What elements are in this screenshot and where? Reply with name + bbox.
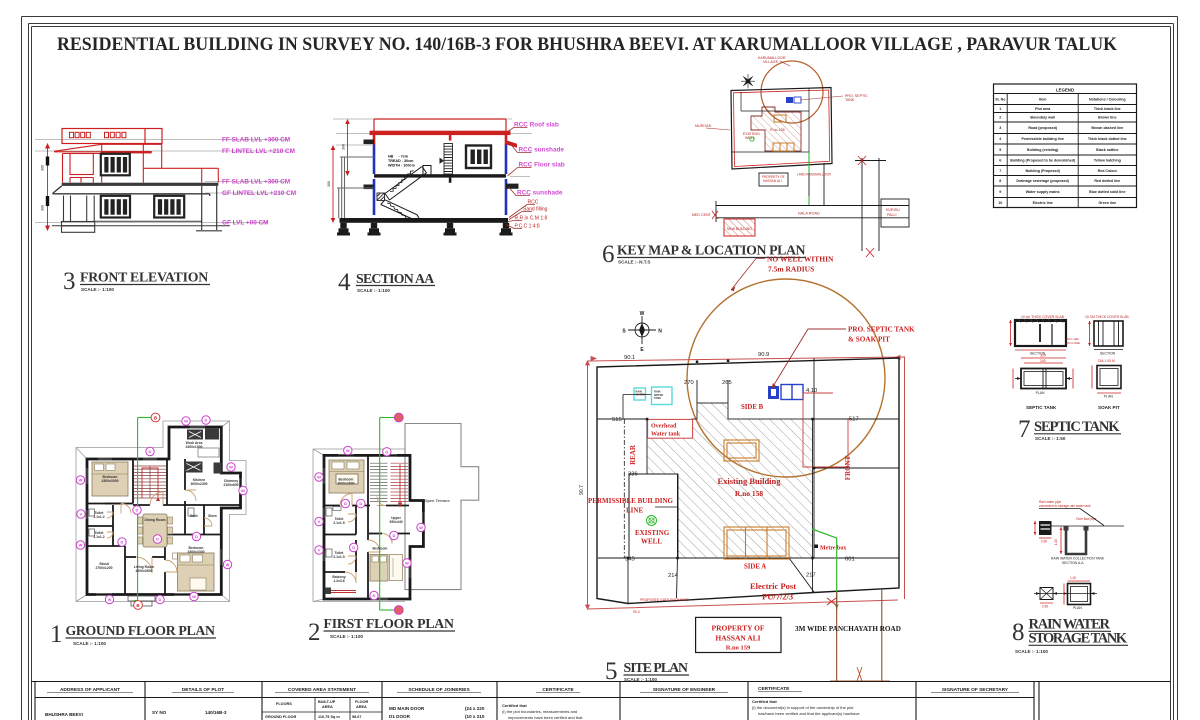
svg-text:Brown line: Brown line [1098, 116, 1116, 120]
svg-text:SECTION A-A: SECTION A-A [1062, 561, 1084, 565]
svg-text:336: 336 [628, 472, 638, 478]
svg-text:RCC: RCC [528, 200, 539, 206]
svg-text:RCC sunshade: RCC sunshade [519, 147, 565, 154]
svg-text:KURISU: KURISU [886, 208, 900, 212]
svg-text:W: W [192, 594, 196, 599]
svg-text:R.no 159: R.no 159 [726, 645, 751, 652]
svg-text:6: 6 [602, 241, 615, 268]
svg-text:Building (existing): Building (existing) [1027, 148, 1059, 152]
svg-text:SCALE :- 1:50: SCALE :- 1:50 [1035, 436, 1066, 441]
svg-text:WELL: WELL [745, 136, 755, 140]
svg-text:W: W [640, 311, 645, 317]
svg-text:7.5m RADIUS: 7.5m RADIUS [768, 265, 814, 274]
svg-text:SEPTIC TANK: SEPTIC TANK [1034, 419, 1120, 435]
svg-text:WELL: WELL [641, 538, 662, 546]
svg-text:3000x3600: 3000x3600 [338, 482, 355, 486]
svg-text:PALLI: PALLI [887, 213, 897, 217]
svg-text:RCC sunshade: RCC sunshade [517, 190, 563, 197]
svg-text:W: W [419, 525, 423, 530]
svg-text:FLOORS: FLOORS [276, 702, 292, 706]
svg-text:& SOAK PIT: & SOAK PIT [848, 336, 890, 344]
svg-text:1: 1 [50, 621, 63, 648]
svg-text:Sand filling: Sand filling [523, 207, 548, 213]
svg-text:Thick black dotted line: Thick black dotted line [1088, 137, 1127, 141]
svg-text:3300x3300: 3300x3300 [188, 550, 205, 554]
svg-text:7: 7 [999, 169, 1001, 173]
svg-text:connected to storage rain wate: connected to storage rain water tank [1039, 504, 1091, 508]
svg-text:1.2x3.6: 1.2x3.6 [333, 579, 344, 583]
svg-text:SIDE B: SIDE B [741, 404, 764, 411]
svg-text:R.no 158: R.no 158 [770, 128, 785, 132]
svg-text:D: D [121, 540, 124, 545]
svg-text:Electric Post: Electric Post [750, 581, 796, 591]
svg-text:Existing Building: Existing Building [717, 476, 781, 486]
svg-text:RESIDENTIAL BUILDING IN SUR: RESIDENTIAL BUILDING IN SURVEY NO. 140/1… [57, 35, 1118, 55]
svg-text:FF SLAB LVL +300 CM: FF SLAB LVL +300 CM [222, 137, 290, 144]
svg-text:FRONT ELEVATION: FRONT ELEVATION [80, 270, 209, 285]
svg-text:D: D [392, 533, 395, 538]
svg-text:improvements have been verifie: improvements have been verified and that [508, 715, 583, 720]
svg-text:HASSAN ALI: HASSAN ALI [763, 179, 782, 183]
svg-text:Blue dotted solid line: Blue dotted solid line [1089, 190, 1125, 194]
svg-text:Building (Proposed): Building (Proposed) [1026, 169, 1061, 173]
svg-text:PERMISSIBLE BUILDING: PERMISSIBLE BUILDING [588, 497, 674, 505]
svg-text:Yellow hatching: Yellow hatching [1094, 159, 1121, 163]
svg-text:PLAN: PLAN [1073, 606, 1082, 610]
svg-text:NEW BUILDING: NEW BUILDING [727, 227, 752, 231]
svg-text:SCALE :- 1:100: SCALE :- 1:100 [81, 287, 114, 292]
svg-text:Bedroom: Bedroom [373, 547, 388, 551]
svg-text:W: W [405, 561, 409, 566]
svg-text:D: D [344, 501, 347, 506]
svg-text:SITE PLAN: SITE PLAN [624, 660, 689, 675]
svg-text:SCALE :- 1:100: SCALE :- 1:100 [1015, 649, 1048, 654]
svg-text:REAR: REAR [629, 444, 637, 465]
svg-text:90.4: 90.4 [633, 610, 640, 614]
svg-text:Boundary wall: Boundary wall [1030, 116, 1055, 120]
svg-text:Store: Store [208, 514, 217, 518]
svg-text:PRO. SEPTIC TANK: PRO. SEPTIC TANK [848, 326, 915, 334]
svg-text:Water supply mains: Water supply mains [1026, 190, 1060, 194]
svg-text:FF LINTEL LVL +210 CM: FF LINTEL LVL +210 CM [222, 148, 295, 155]
svg-text:214: 214 [668, 573, 678, 579]
svg-text:2.1x1.5: 2.1x1.5 [333, 555, 344, 559]
svg-text:2100x600: 2100x600 [223, 483, 238, 487]
svg-text:D: D [352, 545, 355, 550]
svg-text:W: W [229, 465, 233, 470]
svg-text:Brown dashed line: Brown dashed line [1091, 126, 1123, 130]
svg-text:W: W [79, 478, 83, 483]
svg-text:Green line: Green line [1099, 201, 1117, 205]
svg-text:TANK: TANK [845, 98, 855, 102]
svg-text:300: 300 [342, 144, 346, 150]
svg-text:LINE: LINE [626, 507, 643, 515]
svg-text:RCC Roof slab: RCC Roof slab [514, 122, 559, 129]
svg-text:(24 x 220: (24 x 220 [465, 706, 485, 711]
svg-text:MED CENT: MED CENT [692, 213, 712, 217]
svg-text:Drainage sewerage (proposed): Drainage sewerage (proposed) [1016, 179, 1069, 183]
svg-text:300: 300 [327, 181, 331, 187]
svg-text:EXISTING: EXISTING [635, 529, 670, 537]
svg-text:Overhead: Overhead [651, 424, 677, 430]
svg-text:TANK: TANK [654, 396, 661, 400]
svg-text:SCALE :- 1:100: SCALE :- 1:100 [330, 634, 363, 639]
svg-text:0.50: 0.50 [1042, 605, 1048, 609]
svg-text:3M WIDE PANCHAYATH ROAD: 3M WIDE PANCHAYATH ROAD [795, 625, 901, 633]
svg-text:Red Colour: Red Colour [1098, 169, 1118, 173]
svg-text:RAIN WATER COLLECTION TANK: RAIN WATER COLLECTION TANK [1051, 557, 1105, 561]
svg-text:FIRST FLOOR PLAN: FIRST FLOOR PLAN [324, 616, 455, 631]
svg-text:N: N [658, 329, 662, 335]
svg-text:Item: Item [1039, 98, 1046, 102]
svg-text:545: 545 [625, 557, 635, 563]
svg-text:W: W [317, 475, 321, 480]
svg-text:Building (Proposed to be demol: Building (Proposed to be demolished) [1010, 159, 1076, 163]
svg-text:D: D [195, 534, 198, 539]
svg-text:R.R in C.M 1:8: R.R in C.M 1:8 [515, 216, 548, 222]
svg-text:GF LINTEL LVL +210 CM: GF LINTEL LVL +210 CM [222, 190, 296, 197]
svg-text:2: 2 [308, 619, 321, 646]
svg-text:SEPTIC TANK: SEPTIC TANK [1026, 405, 1057, 410]
svg-text:3: 3 [63, 268, 76, 295]
svg-text:110.75 Sq m: 110.75 Sq m [318, 715, 340, 719]
svg-text:D: D [156, 537, 159, 542]
svg-text:SECTION AA: SECTION AA [356, 271, 435, 286]
svg-text:V: V [318, 519, 321, 524]
svg-text:PROPOSED GATE ENTRANCE: PROPOSED GATE ENTRANCE [640, 598, 689, 602]
svg-text:P.C.C 1:4:8: P.C.C 1:4:8 [515, 224, 540, 230]
svg-text:V: V [80, 512, 83, 517]
svg-text:W: W [108, 597, 112, 602]
svg-text:0.50: 0.50 [1041, 540, 1047, 544]
svg-text:STORAGE TANK: STORAGE TANK [1029, 631, 1128, 647]
svg-text:DETAILS OF PLOT: DETAILS OF PLOT [182, 687, 224, 693]
svg-text:4: 4 [338, 269, 351, 296]
svg-text:SECTION: SECTION [1100, 352, 1116, 356]
svg-text:3: 3 [999, 126, 1001, 130]
svg-text:265: 265 [722, 380, 732, 386]
svg-text:MD MAIN DOOR: MD MAIN DOOR [389, 706, 425, 711]
svg-text:W: W [79, 543, 83, 548]
svg-text:Metre box: Metre box [820, 546, 846, 552]
svg-text:D: D [205, 418, 208, 423]
svg-text:WIDTH - 100cm: WIDTH - 100cm [388, 164, 416, 168]
svg-text:D: D [136, 508, 139, 513]
svg-text:601: 601 [845, 557, 855, 563]
svg-text:Open Terrace: Open Terrace [424, 498, 450, 503]
svg-text:Certified that: Certified that [752, 699, 777, 704]
svg-text:W: W [226, 562, 230, 567]
svg-text:GROUND FLOOR: GROUND FLOOR [265, 715, 296, 719]
svg-text:1: 1 [999, 107, 1001, 111]
svg-text:(10 x 210: (10 x 210 [465, 714, 485, 719]
svg-text:D: D [385, 450, 388, 455]
svg-text:SIDE A: SIDE A [744, 564, 766, 571]
svg-text:Black outline: Black outline [1096, 148, 1118, 152]
svg-text:140/16B-3: 140/16B-3 [205, 710, 227, 715]
svg-text:HB - 7cm: HB - 7cm [388, 155, 409, 159]
svg-text:90.9: 90.9 [758, 352, 769, 358]
svg-text:LEGEND: LEGEND [1056, 88, 1074, 93]
svg-text:3300x3000: 3300x3000 [102, 479, 119, 483]
svg-text:Plot area: Plot area [1035, 107, 1051, 111]
svg-text:10 cm THICK COVER SLAB: 10 cm THICK COVER SLAB [1021, 315, 1065, 319]
svg-text:W: W [346, 448, 350, 453]
svg-text:Bath: Bath [190, 514, 198, 518]
svg-text:PLAN: PLAN [1104, 395, 1113, 399]
svg-text:4: 4 [999, 137, 1001, 141]
svg-text:2.1x1.2: 2.1x1.2 [93, 515, 104, 519]
svg-text:(i) the document(s) in support: (i) the document(s) in support of the ow… [752, 705, 854, 710]
svg-text:Thick black line: Thick black line [1094, 107, 1121, 111]
svg-text:Sl. No: Sl. No [995, 98, 1006, 102]
svg-text:Road (proposed): Road (proposed) [1028, 126, 1058, 130]
svg-text:LAND KARUMALLOOR: LAND KARUMALLOOR [797, 173, 832, 177]
svg-text:FLOOR: FLOOR [355, 700, 369, 704]
svg-text:V: V [318, 548, 321, 553]
svg-text:2: 2 [999, 116, 1001, 120]
svg-text:4200x3600: 4200x3600 [136, 569, 153, 573]
svg-text:Certified that: Certified that [502, 703, 527, 708]
svg-text:Water tank: Water tank [651, 432, 681, 438]
svg-text:5: 5 [999, 148, 1001, 152]
svg-text:RCC Floor slab: RCC Floor slab [519, 162, 565, 169]
svg-text:COVERED AREA STATEMENT: COVERED AREA STATEMENT [288, 687, 356, 693]
svg-text:NO WELL WITHIN: NO WELL WITHIN [767, 255, 834, 264]
svg-text:SCHEDULE OF JOINERIES: SCHEDULE OF JOINERIES [408, 687, 470, 693]
svg-text:D: D [359, 501, 362, 506]
svg-text:90.1: 90.1 [624, 355, 635, 361]
svg-text:217: 217 [806, 573, 816, 579]
svg-text:517: 517 [849, 417, 859, 423]
svg-text:ADDRESS OF APPLICANT: ADDRESS OF APPLICANT [60, 687, 120, 693]
svg-text:CERTIFICATE: CERTIFICATE [758, 686, 790, 692]
svg-text:6: 6 [999, 159, 1001, 163]
svg-text:20cm Wall: 20cm Wall [1066, 341, 1080, 345]
svg-text:Dining Room: Dining Room [144, 518, 165, 522]
svg-text:98.67: 98.67 [352, 715, 362, 719]
svg-text:8: 8 [999, 179, 1001, 183]
svg-text:2700x1200: 2700x1200 [96, 566, 113, 570]
svg-text:GF LVL +00 CM: GF LVL +00 CM [222, 220, 268, 227]
svg-text:NALA ROAD: NALA ROAD [798, 212, 820, 216]
svg-text:CERTIFICATE: CERTIFICATE [542, 687, 574, 693]
svg-text:has/have been verified and tha: has/have been verified and that the appl… [758, 711, 860, 716]
svg-text:7: 7 [1018, 416, 1031, 443]
svg-text:BUILT-UP: BUILT-UP [318, 700, 336, 704]
svg-text:2400x1500: 2400x1500 [186, 445, 203, 449]
svg-text:240: 240 [1040, 359, 1046, 363]
svg-text:SCALE :- N.T.S: SCALE :- N.T.S [618, 260, 650, 265]
svg-text:SIGNATURE OF SECRETARY: SIGNATURE OF SECRETARY [942, 687, 1009, 693]
svg-text:300: 300 [41, 165, 45, 171]
svg-text:390x440: 390x440 [389, 520, 402, 524]
svg-text:Electric line: Electric line [1033, 201, 1053, 205]
svg-text:W: W [184, 419, 188, 424]
svg-text:HASSAN ALI: HASSAN ALI [715, 634, 760, 643]
svg-text:SOAK PIT: SOAK PIT [1098, 405, 1120, 410]
svg-text:9: 9 [999, 190, 1001, 194]
svg-text:2.1x1.5: 2.1x1.5 [333, 521, 344, 525]
svg-text:AREA: AREA [356, 705, 367, 709]
svg-text:10 CM THICK COVER SLAB: 10 CM THICK COVER SLAB [1085, 315, 1129, 319]
svg-text:Permissible building line: Permissible building line [1022, 137, 1064, 141]
svg-text:PLAN: PLAN [1036, 391, 1045, 395]
svg-text:2.1x1.2: 2.1x1.2 [93, 535, 104, 539]
svg-text:D: D [159, 597, 162, 602]
svg-text:VILLAGE: VILLAGE [763, 60, 779, 64]
svg-text:3000x2400: 3000x2400 [191, 482, 208, 486]
svg-text:Red dotted line: Red dotted line [1094, 179, 1120, 183]
svg-text:D1 DOOR: D1 DOOR [389, 714, 411, 719]
svg-text:GROUND FLOOR PLAN: GROUND FLOOR PLAN [66, 623, 216, 638]
svg-text:515: 515 [612, 417, 622, 423]
svg-text:Notations / Colouring: Notations / Colouring [1089, 98, 1126, 102]
svg-text:PU/7/2/3: PU/7/2/3 [762, 592, 793, 602]
svg-text:10: 10 [998, 201, 1002, 205]
svg-text:4.10: 4.10 [806, 388, 817, 394]
svg-text:BHUSHRA BEEVI: BHUSHRA BEEVI [45, 712, 83, 717]
svg-text:SCALE :- 1:100: SCALE :- 1:100 [357, 288, 390, 293]
svg-text:SY NO: SY NO [152, 710, 167, 715]
svg-text:270: 270 [684, 380, 694, 386]
svg-text:1.00: 1.00 [1070, 576, 1076, 580]
svg-text:R.no 158: R.no 158 [735, 489, 764, 498]
svg-text:AREA: AREA [322, 705, 333, 709]
svg-text:W: W [241, 488, 245, 493]
svg-text:8: 8 [1012, 619, 1025, 646]
svg-text:SIGNATURE OF ENGINEER: SIGNATURE OF ENGINEER [653, 687, 716, 693]
svg-text:DIA 1.00 M: DIA 1.00 M [1098, 359, 1115, 363]
svg-text:D: D [149, 449, 152, 454]
svg-text:SCALE :- 1:100: SCALE :- 1:100 [73, 641, 106, 646]
svg-text:(i) the plot boundaries, measu: (i) the plot boundaries, measurements an… [502, 709, 577, 714]
svg-text:320: 320 [1040, 354, 1046, 358]
svg-text:90.7: 90.7 [579, 485, 585, 495]
svg-text:1.00: 1.00 [1054, 539, 1058, 545]
svg-text:TREAD - 30cm: TREAD - 30cm [388, 159, 414, 163]
svg-text:FF SLAB LVL +300 CM: FF SLAB LVL +300 CM [222, 179, 290, 186]
svg-text:PROPERTY OF: PROPERTY OF [712, 624, 765, 633]
svg-text:MURIYAD: MURIYAD [695, 124, 712, 128]
svg-text:D: D [373, 593, 376, 598]
svg-text:300: 300 [41, 205, 45, 211]
